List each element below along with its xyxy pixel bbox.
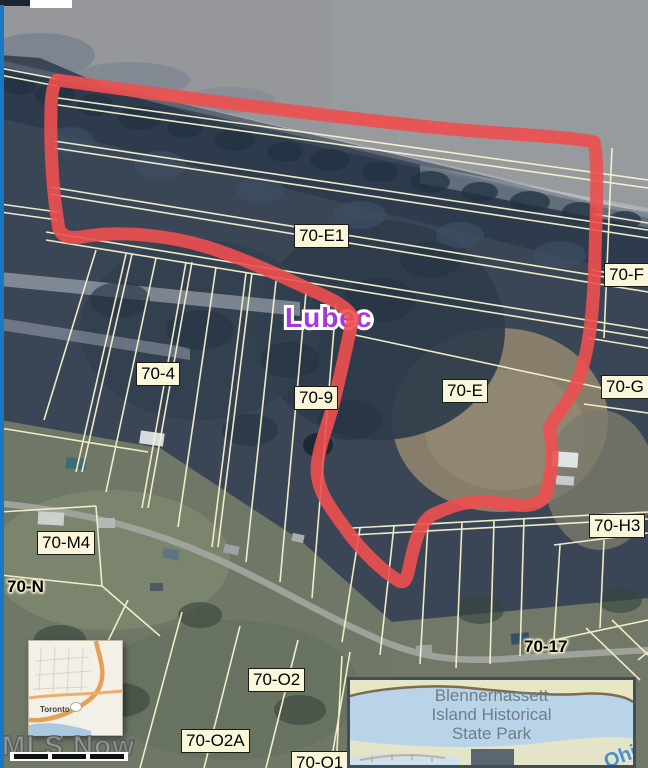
parcel-label-70-17: 70-17 (522, 636, 569, 658)
parcel-label-70-9: 70-9 (294, 386, 338, 410)
parcel-label-70-4: 70-4 (136, 362, 180, 386)
parcel-label-70-E: 70-E (442, 379, 488, 403)
state-park-inset: Blennerhassett Island Historical State P… (347, 677, 636, 768)
map-viewport[interactable]: Lubec 70-E1 70-F 70-4 70-9 70-E 70-G 70-… (0, 0, 648, 768)
parcel-label-70-H3: 70-H3 (589, 514, 645, 538)
parcel-label-70-N: 70-N (5, 576, 46, 598)
park-building-marker (471, 749, 514, 765)
corner-white-box (30, 0, 72, 8)
route-shield (71, 703, 82, 712)
town-label: Toronto (40, 705, 70, 714)
parcel-label-70-E1: 70-E1 (294, 224, 349, 248)
scale-bar (10, 752, 128, 761)
parcel-label-70-M4: 70-M4 (37, 531, 95, 555)
left-edge-strip (0, 5, 4, 768)
corner-navy-bar (0, 0, 30, 6)
town-locator-inset: Toronto (28, 640, 123, 736)
parcel-label-70-O2: 70-O2 (248, 668, 305, 692)
parcel-label-70-G: 70-G (601, 375, 648, 399)
parcel-label-70-O2A: 70-O2A (181, 729, 250, 753)
park-title: Blennerhassett Island Historical State P… (350, 686, 633, 743)
parcel-label-70-F: 70-F (604, 263, 648, 287)
